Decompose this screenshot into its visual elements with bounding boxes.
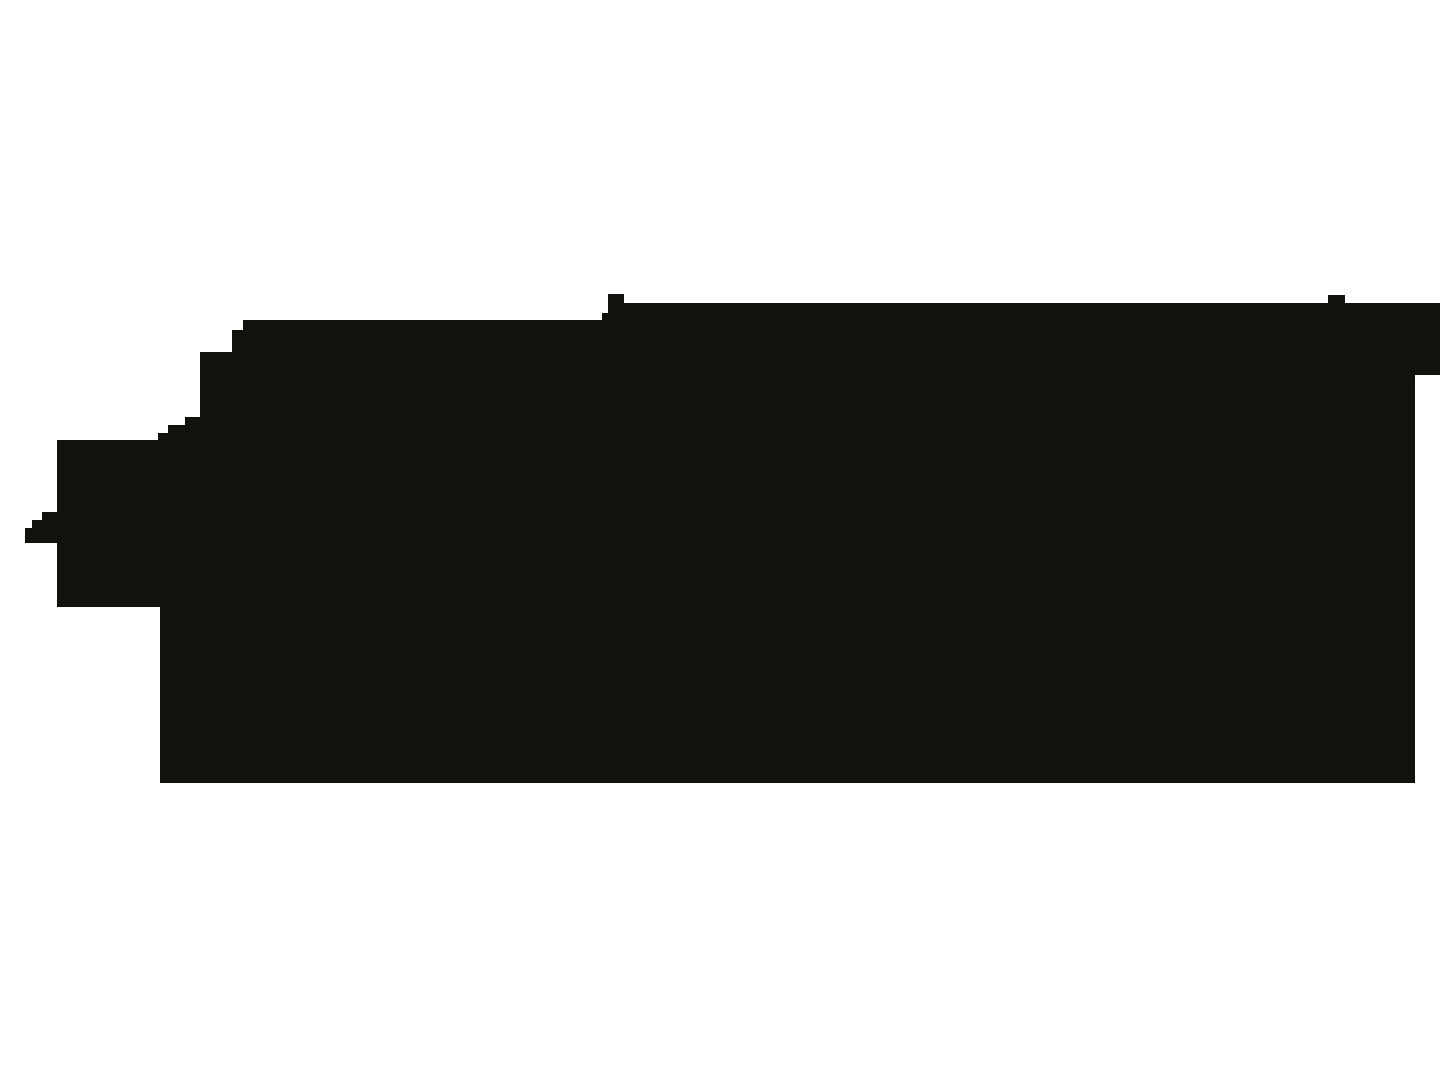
canvas [0, 0, 1440, 1080]
silhouette-shape [25, 294, 1440, 783]
silhouette-graphic [0, 0, 1440, 1080]
